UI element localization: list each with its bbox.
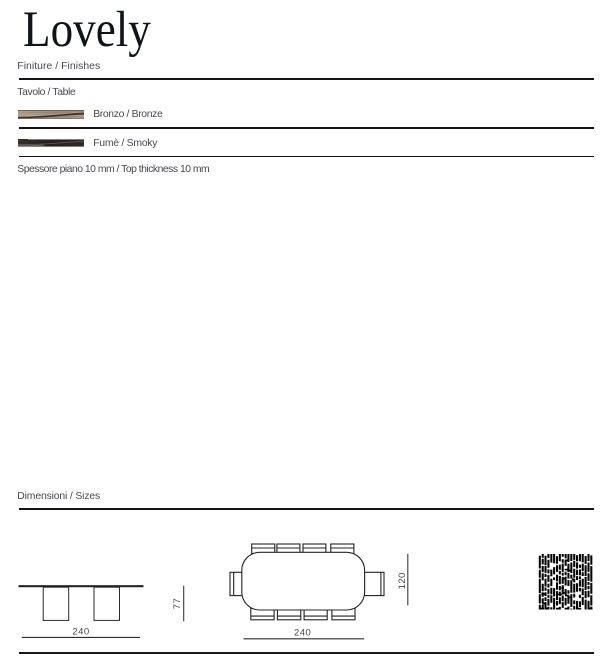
svg-text:77: 77 [172, 598, 183, 609]
svg-text:120: 120 [397, 572, 408, 589]
svg-text:240: 240 [72, 626, 89, 637]
svg-text:240: 240 [294, 628, 311, 639]
